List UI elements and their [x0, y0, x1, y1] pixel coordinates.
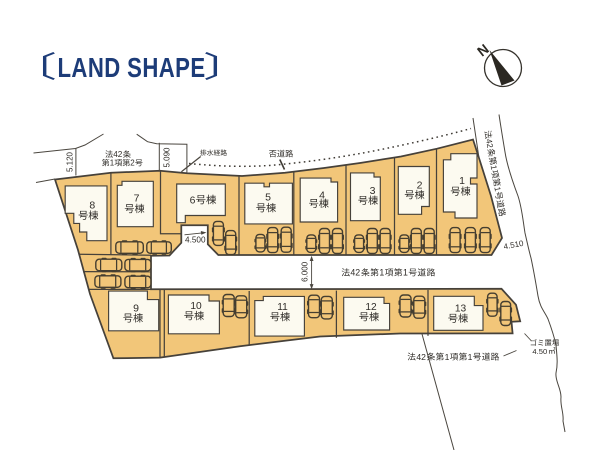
svg-text:42: 42	[350, 268, 360, 278]
svg-text:42: 42	[113, 150, 123, 159]
svg-text:3: 3	[370, 185, 376, 197]
svg-text:5.090: 5.090	[162, 147, 171, 168]
svg-text:1: 1	[403, 268, 408, 278]
svg-text:6: 6	[190, 195, 196, 206]
svg-text:5.120: 5.120	[65, 151, 74, 172]
svg-text:1: 1	[468, 352, 473, 362]
svg-text:1: 1	[379, 268, 384, 278]
svg-text:8: 8	[89, 199, 95, 211]
svg-text:42: 42	[416, 352, 426, 362]
svg-text:1: 1	[445, 352, 450, 362]
svg-text:1: 1	[459, 175, 465, 187]
svg-text:10: 10	[190, 301, 202, 312]
svg-text:LAND SHAPE: LAND SHAPE	[58, 52, 206, 83]
svg-text:7: 7	[134, 193, 140, 205]
svg-text:2: 2	[417, 179, 423, 191]
svg-text:1: 1	[110, 159, 115, 168]
svg-text:13: 13	[455, 303, 467, 314]
svg-text:11: 11	[277, 302, 288, 313]
svg-text:4.50: 4.50	[532, 347, 547, 356]
svg-text:4.500: 4.500	[185, 236, 206, 245]
svg-text:12: 12	[365, 302, 377, 313]
svg-text:5: 5	[265, 191, 271, 203]
svg-text:2: 2	[130, 159, 135, 168]
svg-text:6.000: 6.000	[300, 261, 309, 282]
svg-text:9: 9	[133, 302, 139, 314]
